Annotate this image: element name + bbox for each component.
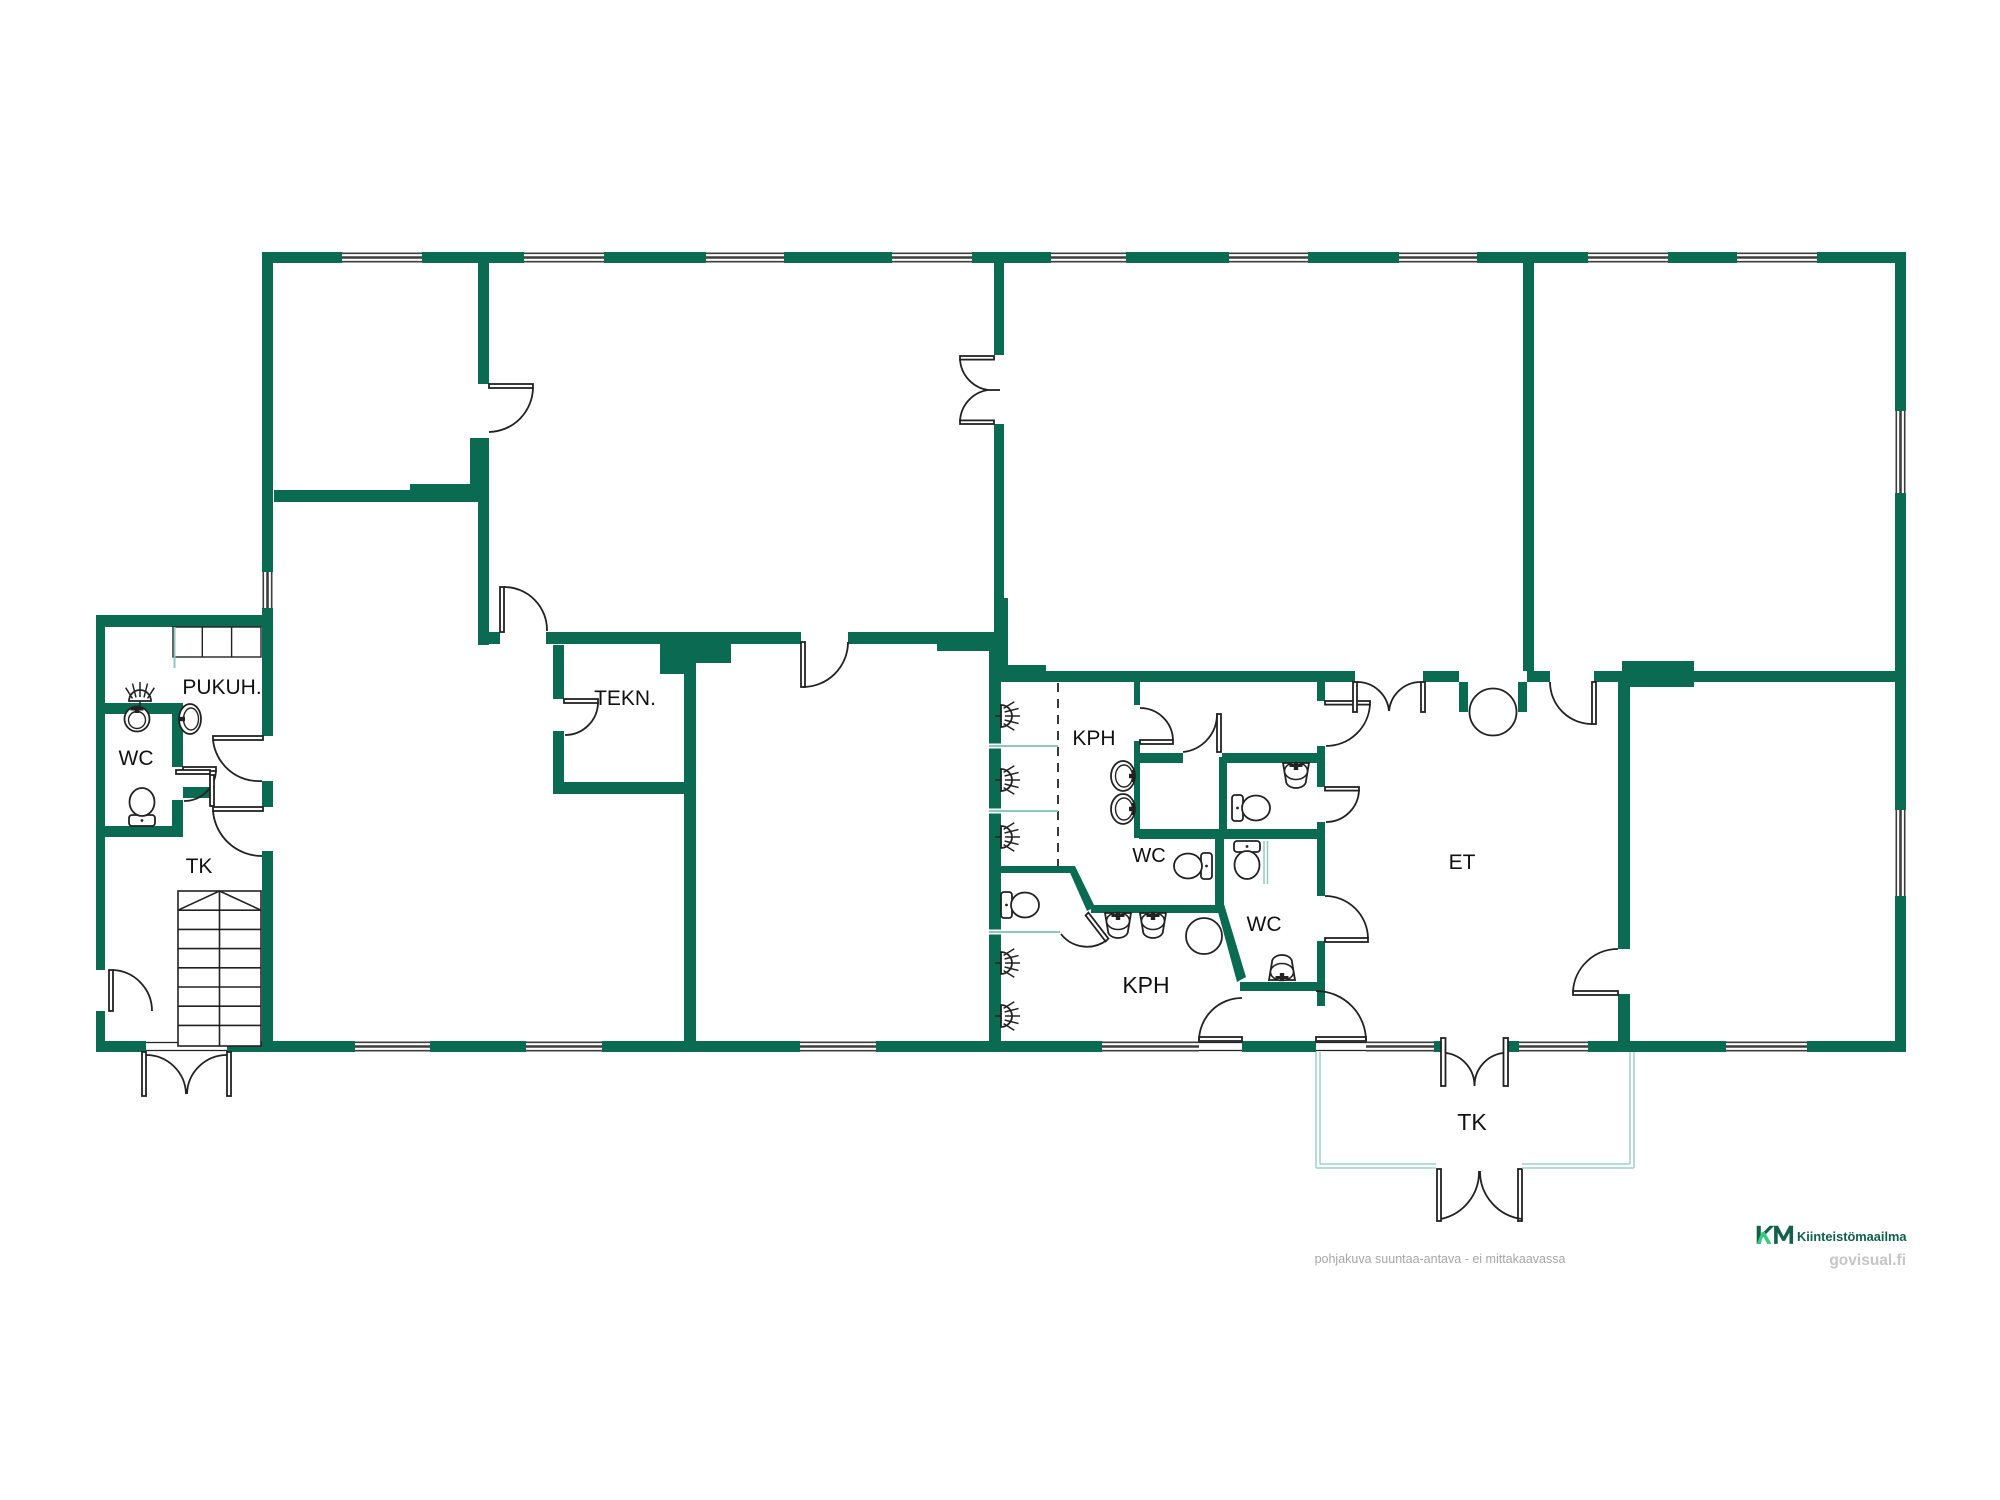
svg-text:WC: WC: [1132, 845, 1165, 867]
svg-text:PUKUH.: PUKUH.: [182, 676, 261, 699]
svg-text:TEKN.: TEKN.: [594, 687, 656, 710]
svg-text:ET: ET: [1449, 851, 1476, 874]
svg-text:Kiinteistömaailma: Kiinteistömaailma: [1797, 1229, 1907, 1244]
svg-text:TK: TK: [1457, 1109, 1487, 1135]
svg-text:WC: WC: [1247, 913, 1282, 936]
svg-text:WC: WC: [119, 747, 154, 770]
svg-text:KPH: KPH: [1072, 727, 1115, 750]
svg-text:pohjakuva suuntaa-antava - ei: pohjakuva suuntaa-antava - ei mittakaava…: [1315, 1252, 1566, 1266]
svg-text:KPH: KPH: [1122, 972, 1169, 998]
svg-text:TK: TK: [186, 855, 213, 878]
svg-text:govisual.fi: govisual.fi: [1829, 1252, 1906, 1269]
